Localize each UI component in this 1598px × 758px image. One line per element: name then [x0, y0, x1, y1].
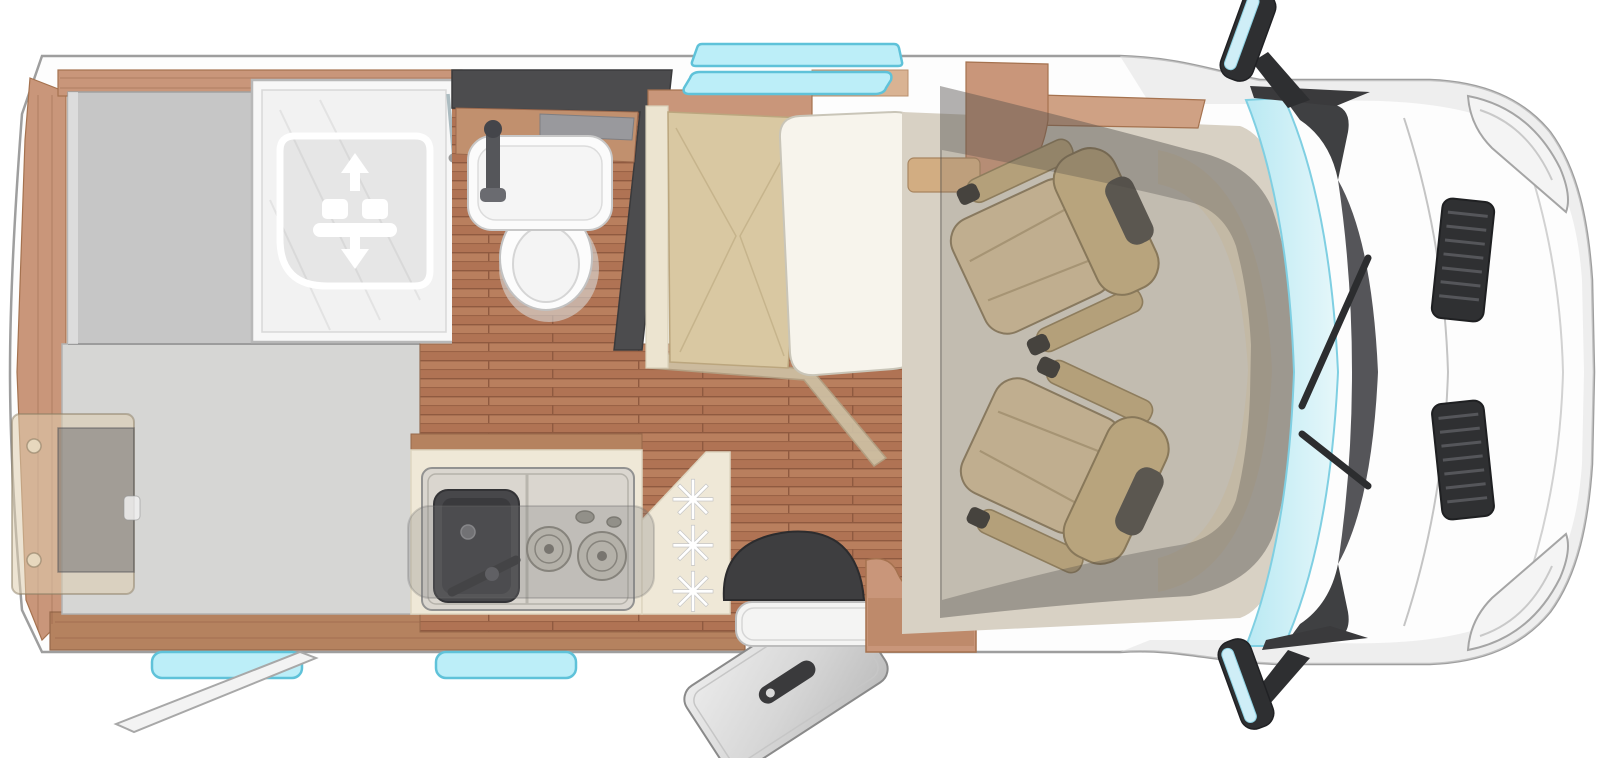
bed-platform-highlight — [68, 92, 78, 344]
motorhome-floorplan: Top-down 3D floor plan of a semi-integra… — [0, 0, 1598, 758]
dinette-side-panel — [646, 106, 668, 368]
dinette — [646, 90, 927, 375]
bonnet-vent-bottom — [1431, 400, 1495, 521]
drop-down-bed-lift-icon — [280, 136, 430, 286]
cabinet-bolt — [27, 439, 41, 453]
floorplan-canvas: Top-down 3D floor plan of a semi-integra… — [0, 0, 1598, 758]
top-wall-window — [692, 44, 902, 66]
drop-down-bed-overlay — [408, 506, 654, 598]
roof-skylight — [684, 72, 892, 94]
bed-icon-pillow-right — [362, 199, 388, 219]
rear-wall-cabinet-translucent — [12, 414, 140, 594]
bed-icon-pillow-left — [322, 199, 348, 219]
fridge-snowflake-icons: ✳ ✳ ✳ — [670, 469, 715, 624]
cabinet-inner-box — [58, 428, 134, 572]
cabinet-bolt — [27, 553, 41, 567]
cabinet-latch — [124, 496, 140, 520]
faucet-base — [480, 188, 506, 202]
bonnet-vent-top — [1431, 198, 1495, 323]
toilet-seat — [513, 226, 579, 302]
washbasin — [468, 120, 612, 230]
bathroom — [452, 70, 672, 350]
bottom-wall-window-right — [436, 652, 576, 678]
snowflake-icon: ✳ — [670, 561, 715, 624]
faucet-head — [484, 120, 502, 138]
rear-bed-platform-upper — [68, 92, 258, 344]
